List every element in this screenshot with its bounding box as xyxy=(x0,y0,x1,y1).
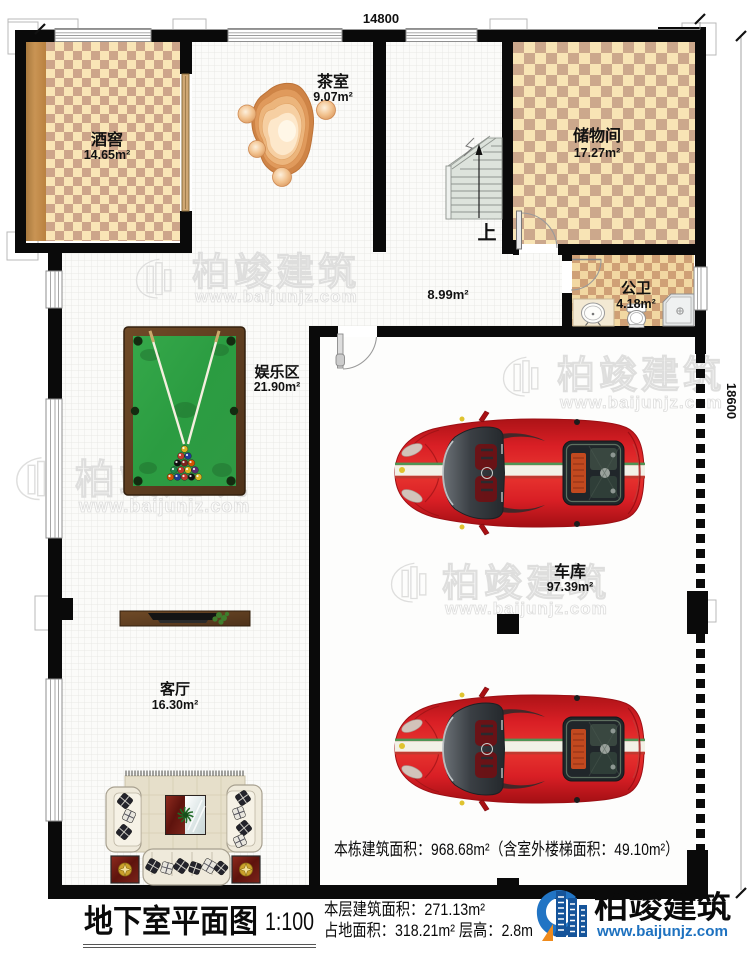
svg-text:16.30m²: 16.30m² xyxy=(152,698,199,712)
svg-text:上: 上 xyxy=(477,222,496,244)
svg-text:14800: 14800 xyxy=(363,11,399,26)
svg-text:www.baijunjz.com: www.baijunjz.com xyxy=(444,599,608,618)
svg-text:1:100: 1:100 xyxy=(265,908,314,936)
svg-text:14.65m²: 14.65m² xyxy=(84,148,131,162)
svg-text:www.baijunjz.com: www.baijunjz.com xyxy=(194,287,358,306)
svg-text:本栋建筑面积：968.68m²（含室外楼梯面积：49.10m: 本栋建筑面积：968.68m²（含室外楼梯面积：49.10m²） xyxy=(334,840,679,859)
svg-text:地下室平面图: 地下室平面图 xyxy=(84,903,258,939)
svg-text:17.27m²: 17.27m² xyxy=(574,146,621,160)
svg-text:柏竣建筑: 柏竣建筑 xyxy=(594,890,731,925)
svg-text:车库: 车库 xyxy=(554,562,586,581)
svg-text:18600: 18600 xyxy=(724,383,739,419)
svg-text:酒窖: 酒窖 xyxy=(91,130,123,149)
svg-text:97.39m²: 97.39m² xyxy=(547,580,594,594)
svg-text:公卫: 公卫 xyxy=(621,280,651,297)
svg-text:娱乐区: 娱乐区 xyxy=(254,363,299,381)
svg-text:www.baijunjz.com: www.baijunjz.com xyxy=(596,923,728,940)
svg-text:客厅: 客厅 xyxy=(159,680,190,698)
svg-text:本层建筑面积：271.13m²: 本层建筑面积：271.13m² xyxy=(324,900,485,919)
svg-text:21.90m²: 21.90m² xyxy=(254,380,301,394)
svg-text:4.18m²: 4.18m² xyxy=(616,297,656,311)
svg-text:9.07m²: 9.07m² xyxy=(313,90,353,104)
svg-text:占地面积：318.21m² 层高：2.8m: 占地面积：318.21m² 层高：2.8m xyxy=(324,921,533,940)
svg-text:8.99m²: 8.99m² xyxy=(427,287,469,302)
svg-text:茶室: 茶室 xyxy=(316,72,349,91)
svg-text:www.baijunjz.com: www.baijunjz.com xyxy=(78,496,250,516)
svg-text:储物间: 储物间 xyxy=(572,126,621,145)
